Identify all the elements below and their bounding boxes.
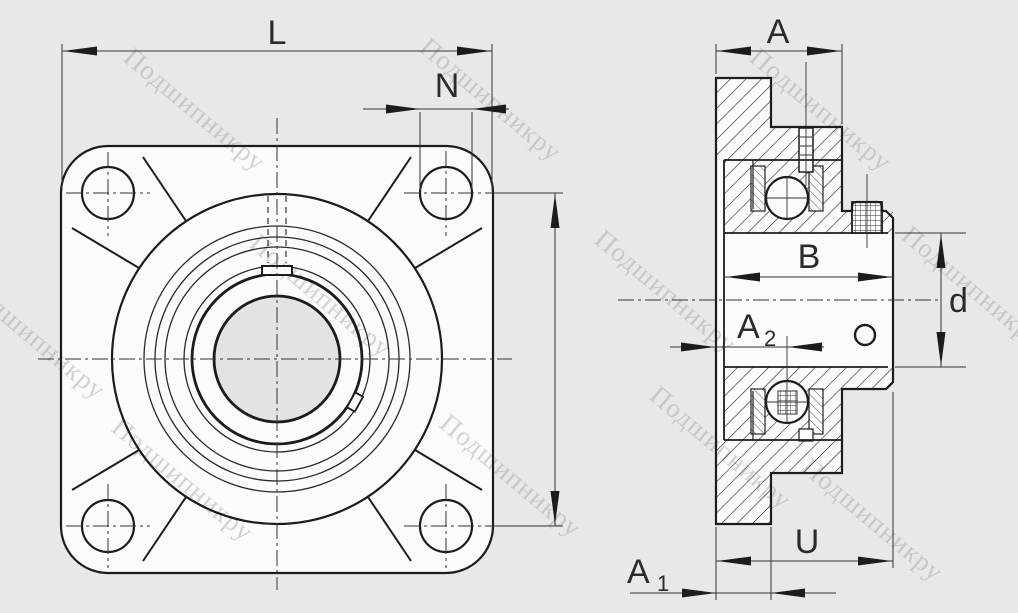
cage-section (778, 391, 797, 414)
dim-arrow (717, 47, 751, 56)
dim-label-N: N (435, 67, 460, 105)
dim-label-A2: A (737, 308, 760, 346)
flanged-bearing-unit-drawing: Подшипникру Подшипникру Подшипникру Подш… (0, 0, 1018, 613)
dim-label-A1: A (627, 553, 650, 591)
dim-arrow (807, 47, 841, 56)
dim-arrow (457, 47, 491, 56)
dim-arrow (386, 105, 420, 114)
dim-arrow (858, 557, 892, 566)
dim-arrow (551, 194, 560, 228)
dim-label-U: U (795, 523, 820, 561)
set-screw-hole-circle (855, 325, 875, 345)
dim-arrow (937, 332, 946, 366)
dim-arrow (682, 589, 716, 598)
dim-label-d: d (949, 282, 968, 320)
dim-label-B: B (798, 238, 821, 276)
technical-drawing-canvas: Подшипникру Подшипникру Подшипникру Подш… (0, 0, 1018, 613)
dim-arrow (63, 47, 97, 56)
dim-label-A2-sub: 2 (764, 326, 776, 351)
dim-label-A1-sub: 1 (657, 571, 669, 596)
dim-label-A: A (767, 13, 790, 51)
hatch-inner-ring-bottom (724, 367, 893, 389)
dim-arrow (717, 557, 751, 566)
dim-arrow (771, 589, 805, 598)
dim-label-L: L (268, 14, 287, 52)
